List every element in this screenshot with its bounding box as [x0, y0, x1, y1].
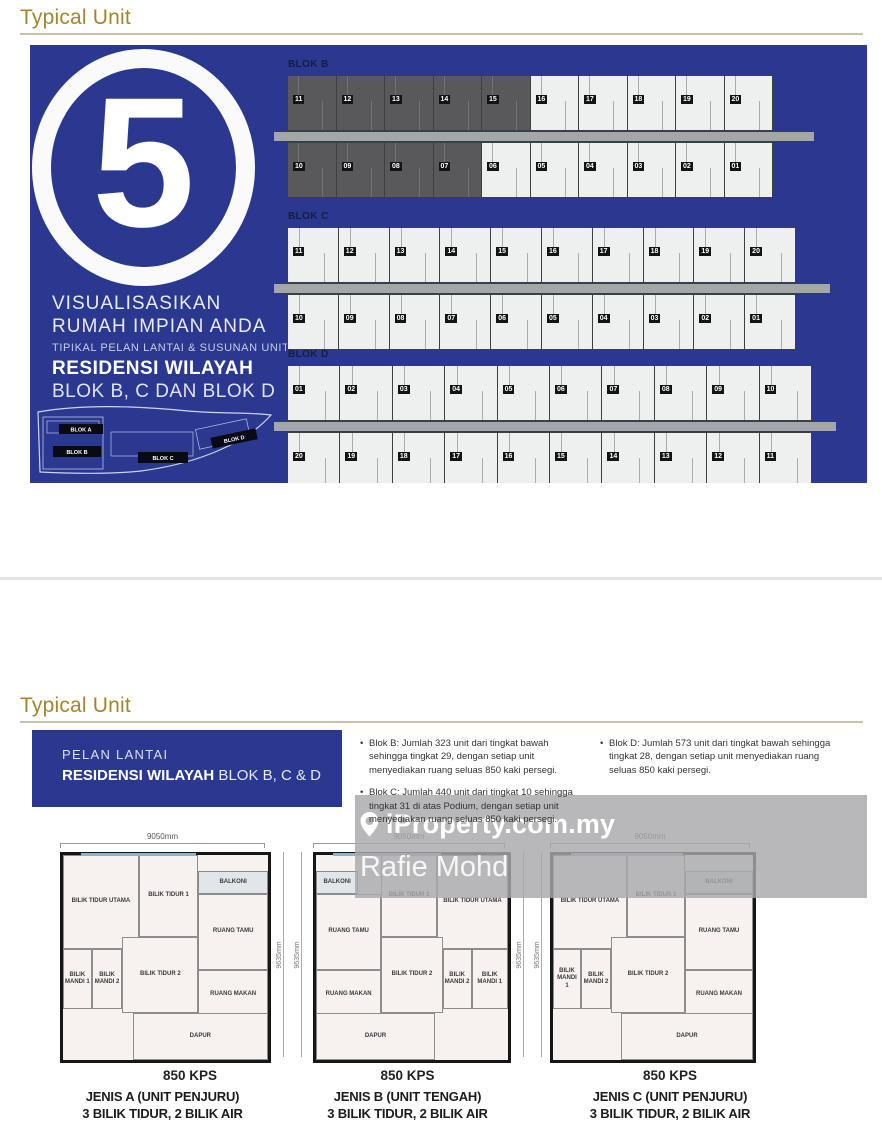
unit-cell-19: 19 [693, 227, 745, 283]
unit-cell-02: 02 [693, 294, 745, 350]
unit-number: 03 [649, 314, 661, 323]
unit-cell-05: 05 [497, 365, 550, 421]
plan-b-type-label: JENIS B (UNIT TENGAH) 3 BILIK TIDUR, 2 B… [285, 1088, 530, 1122]
room-bilik-tidur-1: BILIK TIDUR 1 [139, 855, 198, 937]
unit-cell-05: 05 [541, 294, 593, 350]
plan-a-width-dim: 9050mm [60, 832, 265, 848]
unit-cell-02: 02 [339, 365, 392, 421]
plan-b-name: JENIS B (UNIT TENGAH) [285, 1088, 530, 1105]
unit-number: 10 [293, 162, 305, 171]
room-bilik-mandi-2: BILIK MANDI 2 [581, 949, 611, 1008]
room-bilik-mandi-1: BILIK MANDI 1 [472, 949, 508, 1008]
unit-number: 17 [450, 452, 462, 461]
unit-number: 12 [342, 95, 354, 104]
blok-d-corridor [274, 422, 836, 431]
unit-cell-14: 14 [433, 75, 483, 131]
unit-number: 20 [750, 247, 762, 256]
unit-cell-12: 12 [336, 75, 386, 131]
unit-cell-08: 08 [384, 142, 434, 198]
section1-title: Typical Unit [20, 6, 131, 30]
unit-cell-18: 18 [392, 432, 445, 483]
bullet-blok-c: Blok C: Jumlah 440 unit dari tingkat 10 … [360, 786, 588, 826]
unit-cell-03: 03 [643, 294, 695, 350]
unit-cell-16: 16 [530, 75, 580, 131]
unit-cell-12: 12 [706, 432, 759, 483]
unit-cell-06: 06 [490, 294, 542, 350]
unit-number: 08 [395, 314, 407, 323]
room-balkoni: BALKONI [198, 871, 268, 894]
unit-cell-19: 19 [339, 432, 392, 483]
unit-cell-08: 08 [389, 294, 441, 350]
unit-number: 12 [712, 452, 724, 461]
unit-number: 18 [398, 452, 410, 461]
unit-number: 07 [607, 385, 619, 394]
blok-b-top-row: 11121314151617181920 [288, 75, 773, 131]
room-bilik-mandi-2: BILIK MANDI 2 [92, 949, 123, 1008]
unit-number: 14 [445, 247, 457, 256]
room-dapur: DAPUR [133, 1013, 268, 1060]
section-divider [0, 577, 882, 580]
room-dapur: DAPUR [621, 1013, 753, 1060]
unit-number: 10 [765, 385, 777, 394]
unit-number: 19 [345, 452, 357, 461]
unit-number: 04 [598, 314, 610, 323]
unit-number: 06 [487, 162, 499, 171]
unit-cell-03: 03 [392, 365, 445, 421]
unit-cell-09: 09 [338, 294, 390, 350]
room-bilik-mandi-1: BILIK MANDI 1 [63, 949, 92, 1008]
headline-subline: TIPIKAL PELAN LANTAI & SUSUNAN UNIT [52, 342, 289, 354]
height-dim-label: 9635mm [276, 941, 283, 968]
unit-number: 20 [293, 452, 305, 461]
unit-number: 06 [496, 314, 508, 323]
unit-number: 08 [390, 162, 402, 171]
height-dim-label: 9635mm [516, 941, 523, 968]
room-bilik-mandi-1: BILIK MANDI 1 [553, 949, 581, 1008]
unit-number: 13 [390, 95, 402, 104]
unit-cell-17: 17 [578, 75, 628, 131]
unit-number: 18 [649, 247, 661, 256]
unit-cell-15: 15 [490, 227, 542, 283]
unit-cell-16: 16 [497, 432, 550, 483]
unit-cell-01: 01 [287, 365, 340, 421]
plan-c-name: JENIS C (UNIT PENJURU) [545, 1088, 795, 1105]
poster-number: 5 [92, 71, 195, 256]
unit-cell-06: 06 [549, 365, 602, 421]
room-ruang-tamu: RUANG TAMU [316, 894, 381, 970]
room-bilik-mandi-2: BILIK MANDI 2 [443, 949, 472, 1008]
pelan-lantai-title: RESIDENSI WILAYAH BLOK B, C & D [62, 767, 342, 784]
unit-cell-03: 03 [627, 142, 677, 198]
plan-a-height-dims: 9635mm 9635mm [279, 852, 306, 1057]
unit-cell-15: 15 [549, 432, 602, 483]
room-balkoni: BALKONI [316, 871, 358, 894]
project-name: RESIDENSI WILAYAH [52, 357, 289, 380]
unit-number: 14 [439, 95, 451, 104]
siteplan-blok-a-label: BLOK A [71, 428, 92, 434]
unit-cell-14: 14 [439, 227, 491, 283]
blok-c-corridor [274, 284, 830, 293]
unit-number: 11 [765, 452, 776, 461]
plan-c-spec: 3 BILIK TIDUR, 2 BILIK AIR [545, 1105, 795, 1122]
plan-a-spec: 3 BILIK TIDUR, 2 BILIK AIR [40, 1105, 285, 1122]
room-ruang-makan: RUANG MAKAN [685, 970, 753, 1019]
room-dapur: DAPUR [316, 1013, 435, 1060]
unit-cell-10: 10 [287, 142, 337, 198]
height-dim-label: 9635mm [294, 941, 301, 968]
unit-number: 13 [395, 247, 407, 256]
unit-number: 18 [633, 95, 645, 104]
unit-cell-10: 10 [287, 294, 339, 350]
unit-number: 02 [345, 385, 357, 394]
siteplan-blok-b-label: BLOK B [66, 450, 87, 456]
unit-cell-04: 04 [444, 365, 497, 421]
plan-b-spec: 3 BILIK TIDUR, 2 BILIK AIR [285, 1105, 530, 1122]
unit-number: 17 [598, 247, 610, 256]
blok-b-label: BLOK B [288, 59, 814, 70]
unit-number: 14 [607, 452, 619, 461]
blok-c-label: BLOK C [288, 211, 830, 222]
blok-d-top-row: 01020304050607080910 [288, 365, 812, 421]
room-ruang-tamu: RUANG TAMU [198, 894, 268, 970]
unit-number: 11 [293, 247, 304, 256]
unit-cell-17: 17 [592, 227, 644, 283]
unit-cell-09: 09 [336, 142, 386, 198]
unit-cell-09: 09 [706, 365, 759, 421]
unit-cell-20: 20 [724, 75, 774, 131]
unit-cell-01: 01 [744, 294, 796, 350]
unit-number: 16 [547, 247, 559, 256]
unit-number: 05 [503, 385, 515, 394]
unit-cell-13: 13 [654, 432, 707, 483]
height-dim-label: 9635mm [534, 941, 541, 968]
unit-cell-11: 11 [287, 227, 339, 283]
plan-c-type-label: JENIS C (UNIT PENJURU) 3 BILIK TIDUR, 2 … [545, 1088, 795, 1122]
pelan-lantai-label: PELAN LANTAI [62, 747, 342, 762]
unit-number: 06 [555, 385, 567, 394]
unit-number: 03 [398, 385, 410, 394]
plan-a-width-label: 9050mm [60, 832, 265, 841]
unit-cell-08: 08 [654, 365, 707, 421]
unit-number: 05 [536, 162, 548, 171]
unit-cell-04: 04 [592, 294, 644, 350]
unit-number: 13 [660, 452, 672, 461]
unit-number: 09 [342, 162, 354, 171]
unit-cell-14: 14 [601, 432, 654, 483]
bullet-blok-b: Blok B: Jumlah 323 unit dari tingkat baw… [360, 737, 588, 777]
room-bilik-tidur-2: BILIK TIDUR 2 [611, 937, 685, 1013]
pelan-lantai-project: RESIDENSI WILAYAH [62, 767, 214, 784]
unit-number: 16 [503, 452, 515, 461]
unit-cell-18: 18 [643, 227, 695, 283]
plan-a-type-label: JENIS A (UNIT PENJURU) 3 BILIK TIDUR, 2 … [40, 1088, 285, 1122]
room-bilik-tidur-2: BILIK TIDUR 2 [122, 937, 198, 1013]
plan-c-area: 850 KPS [570, 1068, 770, 1083]
floor-strip-blok-c: BLOK C 11121314151617181920 100908070605… [288, 211, 830, 350]
listing-page: Typical Unit 5 VISUALISASIKAN RUMAH IMPI… [0, 0, 882, 1133]
floor-strip-blok-d: BLOK D 01020304050607080910 201918171615… [288, 349, 836, 483]
unit-number: 10 [293, 314, 305, 323]
pelan-lantai-box: PELAN LANTAI RESIDENSI WILAYAH BLOK B, C… [32, 730, 342, 807]
unit-number: 04 [584, 162, 596, 171]
blok-b-bottom-row: 10090807060504030201 [288, 142, 773, 198]
unit-cell-02: 02 [675, 142, 725, 198]
unit-cell-12: 12 [338, 227, 390, 283]
unit-cell-07: 07 [601, 365, 654, 421]
floorplan-jenis-a: BILIK TIDUR UTAMABILIK TIDUR 1BALKONIRUA… [60, 852, 271, 1063]
unit-cell-10: 10 [759, 365, 812, 421]
unit-number: 02 [681, 162, 693, 171]
bullets-column-1: Blok B: Jumlah 323 unit dari tingkat baw… [360, 737, 588, 836]
unit-number: 07 [439, 162, 451, 171]
unit-number: 12 [344, 247, 356, 256]
room-ruang-tamu: RUANG TAMU [685, 894, 753, 970]
section2-rule [20, 721, 863, 723]
unit-number: 03 [633, 162, 645, 171]
section1-rule [20, 33, 863, 35]
unit-cell-18: 18 [627, 75, 677, 131]
unit-number: 02 [699, 314, 711, 323]
unit-cell-06: 06 [481, 142, 531, 198]
unit-number: 19 [681, 95, 693, 104]
room-bilik-tidur-2: BILIK TIDUR 2 [381, 937, 442, 1013]
unit-number: 05 [547, 314, 559, 323]
unit-cell-20: 20 [287, 432, 340, 483]
unit-cell-19: 19 [675, 75, 725, 131]
siteplan-blok-c-label: BLOK C [152, 456, 173, 462]
unit-number: 08 [660, 385, 672, 394]
room-bilik-tidur-utama: BILIK TIDUR UTAMA [63, 855, 139, 949]
unit-number: 20 [730, 95, 742, 104]
headline-line2: RUMAH IMPIAN ANDA [52, 315, 289, 338]
blok-d-bottom-row: 20191817161514131211 [288, 432, 812, 483]
unit-cell-16: 16 [541, 227, 593, 283]
unit-number: 01 [730, 162, 742, 171]
blok-d-label: BLOK D [288, 349, 836, 360]
unit-number: 19 [699, 247, 711, 256]
plan-a-name: JENIS A (UNIT PENJURU) [40, 1088, 285, 1105]
section2-title: Typical Unit [20, 694, 131, 718]
unit-number: 04 [450, 385, 462, 394]
unit-number: 15 [496, 247, 508, 256]
bullets-column-2: Blok D: Jumlah 573 unit dari tingkat baw… [600, 737, 837, 786]
unit-number: 09 [712, 385, 724, 394]
siteplan-outline: BLOK A BLOK B BLOK C BLOK D [33, 400, 278, 480]
unit-cell-07: 07 [439, 294, 491, 350]
plan-b-area: 850 KPS [305, 1068, 510, 1083]
poster-panel: 5 VISUALISASIKAN RUMAH IMPIAN ANDA TIPIK… [30, 45, 867, 483]
unit-cell-05: 05 [530, 142, 580, 198]
poster-headline: VISUALISASIKAN RUMAH IMPIAN ANDA TIPIKAL… [52, 292, 289, 403]
unit-cell-20: 20 [744, 227, 796, 283]
unit-cell-13: 13 [384, 75, 434, 131]
unit-number: 17 [584, 95, 596, 104]
headline-line1: VISUALISASIKAN [52, 292, 289, 315]
unit-number: 15 [487, 95, 499, 104]
unit-cell-01: 01 [724, 142, 774, 198]
unit-cell-15: 15 [481, 75, 531, 131]
unit-cell-17: 17 [444, 432, 497, 483]
unit-number: 09 [344, 314, 356, 323]
unit-cell-13: 13 [389, 227, 441, 283]
unit-number: 11 [293, 95, 304, 104]
room-ruang-makan: RUANG MAKAN [198, 970, 268, 1019]
unit-number: 16 [536, 95, 548, 104]
unit-cell-11: 11 [287, 75, 337, 131]
blok-c-bottom-row: 10090807060504030201 [288, 294, 796, 350]
unit-cell-11: 11 [759, 432, 812, 483]
unit-number: 15 [555, 452, 567, 461]
unit-number: 01 [293, 385, 305, 394]
agent-name-watermark: Rafie Mohd [360, 851, 508, 884]
unit-cell-04: 04 [578, 142, 628, 198]
pelan-lantai-blocks: BLOK B, C & D [214, 767, 321, 784]
bullet-blok-d: Blok D: Jumlah 573 unit dari tingkat baw… [600, 737, 837, 777]
blok-b-corridor [274, 132, 814, 141]
unit-number: 01 [750, 314, 762, 323]
unit-cell-07: 07 [433, 142, 483, 198]
number-badge-circle: 5 [32, 49, 255, 286]
blok-c-top-row: 11121314151617181920 [288, 227, 796, 283]
plan-a-area: 850 KPS [85, 1068, 295, 1083]
floor-strip-blok-b: BLOK B 11121314151617181920 100908070605… [288, 59, 814, 198]
room-ruang-makan: RUANG MAKAN [316, 970, 381, 1019]
unit-number: 07 [445, 314, 457, 323]
